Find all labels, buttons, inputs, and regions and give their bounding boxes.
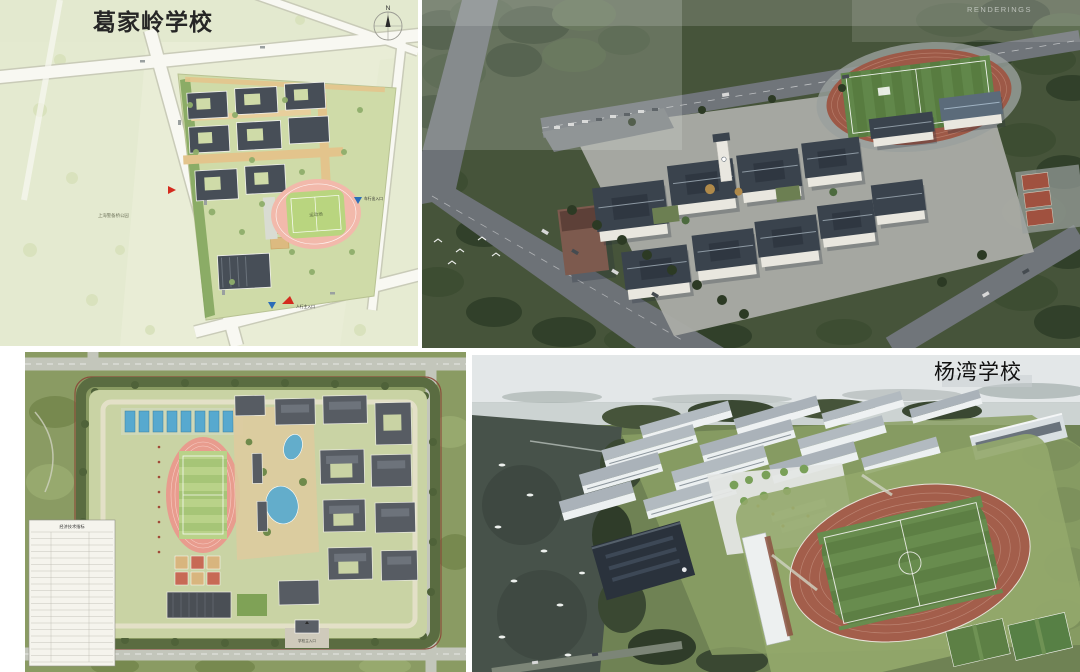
running-track xyxy=(166,437,240,553)
gejialing-title: 葛家岭学校 xyxy=(93,3,213,37)
renderings-watermark: RENDERINGS xyxy=(967,5,1032,14)
main-entrance-label: 人行主入口 xyxy=(296,304,315,309)
yangwan-title: 杨湾学校 xyxy=(934,356,1022,386)
gejialing-rendering: RENDERINGS xyxy=(422,0,1080,348)
gym-building xyxy=(167,592,267,618)
entrance-label: 学校主入口 xyxy=(298,638,316,643)
gejialing-site-plan: 运动场 车行出入口 xyxy=(0,0,418,346)
haze xyxy=(852,0,1080,42)
central-landscape xyxy=(233,406,319,560)
yangwan-rendering-panel xyxy=(472,355,1080,672)
garden-plots xyxy=(237,594,267,616)
park-label: 上海警备桥公园 xyxy=(98,212,129,219)
yangwan-site-plan: 学校主入口 经济技术指标 xyxy=(25,352,466,672)
gejialing-site-plan-panel: 运动场 车行出入口 xyxy=(0,0,418,346)
indicators-table-title: 经济技术指标 xyxy=(59,523,84,530)
pool-lanes xyxy=(121,408,243,435)
basketball-courts xyxy=(1015,164,1080,233)
compass-n-label: N xyxy=(386,5,391,12)
yangwan-rendering xyxy=(472,355,1080,672)
presentation-sheet: 运动场 车行出入口 xyxy=(0,0,1080,672)
indicators-table: 经济技术指标 xyxy=(29,520,115,666)
yangwan-site-plan-panel: 学校主入口 经济技术指标 xyxy=(25,352,466,672)
vehicle-entrance-label: 车行出入口 xyxy=(364,196,383,201)
gejialing-rendering-panel: RENDERINGS xyxy=(422,0,1080,348)
